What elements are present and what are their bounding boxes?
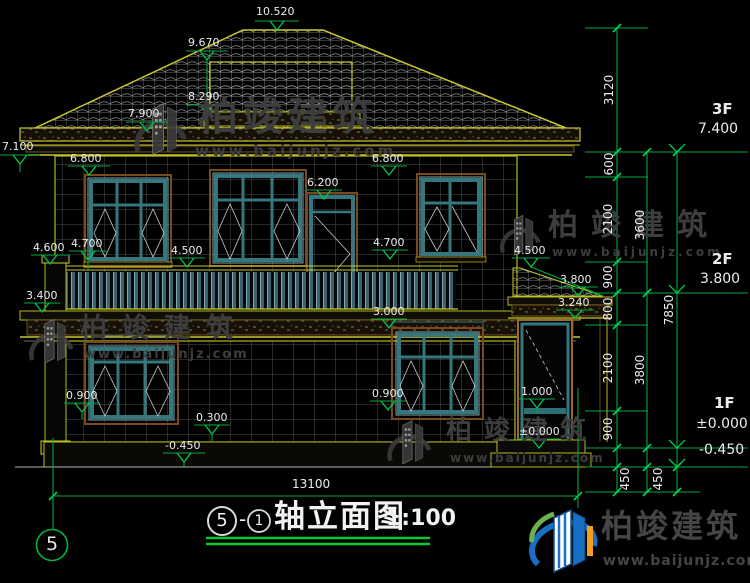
elev-1f-sill-right: 0.900: [372, 388, 404, 399]
elev-porch-floor: ±0.000: [519, 426, 560, 437]
axis-bubble-number: 5: [43, 535, 61, 554]
elev-porch-door-rail: 1.000: [521, 386, 553, 397]
company-logo-brand: 柏竣建筑: [601, 510, 741, 542]
title-axis-end: 1: [253, 514, 265, 528]
vdim-450b: 450: [652, 468, 664, 491]
elev-sill-right: 4.700: [373, 237, 405, 248]
vdim-450a: 450: [619, 468, 631, 491]
vdim-900b: 900: [602, 418, 614, 441]
title-dash: -: [239, 509, 246, 529]
elevation-drawing: .y{stroke:#c9c92e;fill:none} .yd{stroke:…: [0, 0, 750, 583]
elev-porch-eave: 3.240: [558, 297, 590, 308]
vdim-3600: 3600: [634, 210, 646, 241]
elev-1f-sill-left: 0.900: [66, 390, 98, 401]
vdim-3120: 3120: [603, 75, 615, 106]
bottom-total-dimension: 13100: [292, 478, 330, 490]
watermark-url-top: www.baijunjz.com: [195, 144, 396, 159]
elev-slab: 3.400: [26, 290, 58, 301]
watermark-url-bottom: www.baijunjz.com: [450, 452, 605, 464]
elev-rail-mid: 4.500: [171, 245, 203, 256]
vdim-2100b: 2100: [602, 353, 614, 384]
elev-eave-bottom: 7.100: [2, 141, 34, 152]
elev-peak: 10.520: [256, 6, 295, 17]
elev-porch-ridge: 3.800: [560, 274, 592, 285]
vdim-3800: 3800: [634, 355, 646, 386]
elev-sill-left: 4.700: [71, 238, 103, 249]
elev-1f-win-top: 3.000: [373, 306, 405, 317]
watermark-url-left: www.baijunjz.com: [84, 348, 249, 361]
company-logo-icon: [532, 510, 595, 572]
company-logo-url: www.baijunjz.com: [603, 554, 750, 568]
level-2f-label: 2F: [712, 252, 733, 267]
level-1f-label: 1F: [714, 396, 735, 411]
elev-porch-roof-top: 4.500: [514, 245, 546, 256]
level-2f-value: 3.800: [700, 272, 740, 286]
elev-ground-left: -0.450: [165, 440, 200, 451]
title-axis-start: 5: [213, 512, 231, 530]
watermark-url-right: www.baijunjz.com: [552, 246, 723, 258]
level-1f-ground: -0.450: [699, 443, 744, 457]
elev-1f-step: 0.300: [196, 412, 228, 423]
level-3f-value: 7.400: [698, 122, 738, 136]
vdim-600: 600: [603, 153, 615, 176]
elev-ridge: 9.670: [188, 37, 220, 48]
watermark-brand-top: 柏竣建筑: [198, 97, 378, 137]
elev-win-top-left: 6.800: [70, 153, 102, 164]
drawing-scale: 1:100: [386, 508, 456, 530]
elev-pilaster-cap: 4.600: [33, 242, 65, 253]
cad-elevation-screenshot: .y{stroke:#c9c92e;fill:none} .yd{stroke:…: [0, 0, 750, 583]
watermark-brand-left: 柏竣建筑: [80, 315, 248, 342]
vdim-2100a: 2100: [602, 204, 614, 235]
elev-door-top: 6.200: [307, 177, 339, 188]
elev-eave-top: 7.900: [128, 108, 160, 119]
elev-win-top-right: 6.800: [372, 153, 404, 164]
vdim-7850: 7850: [663, 295, 675, 326]
vdim-900a: 900: [602, 266, 614, 289]
vdim-800: 800: [602, 298, 614, 321]
level-1f-value: ±0.000: [696, 417, 748, 431]
level-3f-label: 3F: [712, 102, 733, 117]
elev-upper-eave: 8.290: [188, 91, 220, 102]
